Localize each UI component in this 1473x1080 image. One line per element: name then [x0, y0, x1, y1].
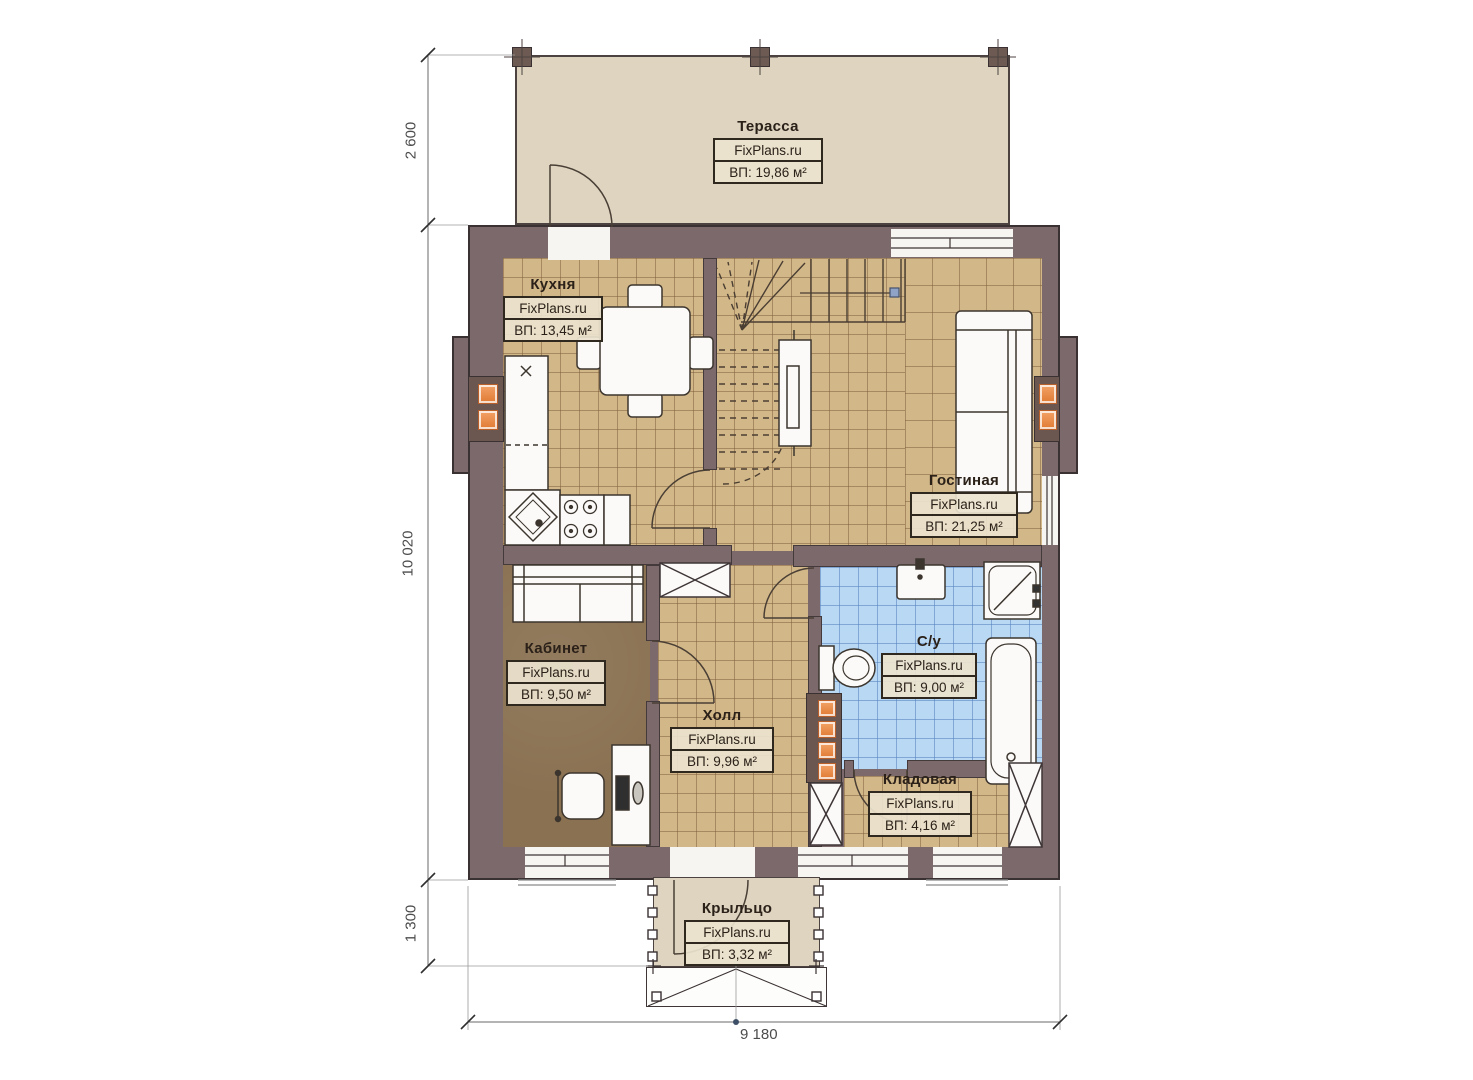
dim-house-depth: 10 020	[399, 531, 416, 577]
brand-watermark: FixPlans.ru	[883, 655, 975, 675]
entry-door-opening	[670, 847, 755, 878]
room-label-storage: Кладовая FixPlans.ru ВП: 4,16 м²	[868, 771, 972, 837]
room-area: ВП: 21,25 м²	[912, 514, 1016, 536]
room-name: Терасса	[713, 118, 823, 135]
terrace-post	[750, 47, 770, 67]
window-top	[891, 229, 1013, 257]
floor-plan: Терасса FixPlans.ru ВП: 19,86 м² Кухня F…	[0, 0, 1473, 1080]
window-porch	[798, 847, 908, 878]
radiator-living	[1034, 376, 1060, 442]
dim-porch-depth: 1 300	[402, 905, 419, 943]
room-name: С/у	[881, 633, 977, 650]
room-area: ВП: 19,86 м²	[715, 160, 821, 182]
room-info-box: FixPlans.ru ВП: 9,96 м²	[670, 727, 774, 773]
wall-kitchen-bottom	[503, 545, 732, 565]
terrace-post	[512, 47, 532, 67]
room-name: Кабинет	[506, 640, 606, 657]
wall-living-bathroom	[793, 545, 1042, 567]
right-wall-pilaster	[1058, 336, 1078, 474]
room-info-box: FixPlans.ru ВП: 13,45 м²	[503, 296, 603, 342]
brand-watermark: FixPlans.ru	[508, 662, 604, 682]
room-name: Холл	[670, 707, 774, 724]
room-name: Кухня	[503, 276, 603, 293]
room-label-bathroom: С/у FixPlans.ru ВП: 9,00 м²	[881, 633, 977, 699]
brand-watermark: FixPlans.ru	[870, 793, 970, 813]
room-label-kitchen: Кухня FixPlans.ru ВП: 13,45 м²	[503, 276, 603, 342]
room-area: ВП: 9,96 м²	[672, 749, 772, 771]
wall-kitchen-stairs	[703, 258, 717, 470]
wall-office-hall	[646, 701, 660, 847]
wall-storage-top	[844, 760, 854, 778]
room-label-living: Гостиная FixPlans.ru ВП: 21,25 м²	[910, 472, 1018, 538]
porch-steps	[646, 967, 827, 1007]
terrace-post	[988, 47, 1008, 67]
brand-watermark: FixPlans.ru	[715, 140, 821, 160]
room-info-box: FixPlans.ru ВП: 4,16 м²	[868, 791, 972, 837]
room-area: ВП: 4,16 м²	[870, 813, 970, 835]
room-info-box: FixPlans.ru ВП: 9,00 м²	[881, 653, 977, 699]
room-label-hall: Холл FixPlans.ru ВП: 9,96 м²	[670, 707, 774, 773]
radiator-hall	[806, 693, 842, 783]
room-area: ВП: 9,00 м²	[883, 675, 975, 697]
office-floor	[503, 565, 650, 847]
room-area: ВП: 13,45 м²	[505, 318, 601, 340]
hall-floor	[658, 565, 808, 847]
window-office	[525, 847, 609, 878]
terrace-door-opening	[548, 227, 610, 260]
window-right	[1042, 476, 1058, 545]
room-label-porch: Крыльцо FixPlans.ru ВП: 3,32 м²	[684, 900, 790, 966]
room-info-box: FixPlans.ru ВП: 19,86 м²	[713, 138, 823, 184]
room-area: ВП: 3,32 м²	[686, 942, 788, 964]
room-label-office: Кабинет FixPlans.ru ВП: 9,50 м²	[506, 640, 606, 706]
room-info-box: FixPlans.ru ВП: 3,32 м²	[684, 920, 790, 966]
window-storage	[933, 847, 1002, 878]
stair-hall-floor	[715, 258, 907, 551]
room-info-box: FixPlans.ru ВП: 9,50 м²	[506, 660, 606, 706]
wall-office-hall	[646, 565, 660, 641]
brand-watermark: FixPlans.ru	[912, 494, 1016, 514]
radiator-kitchen	[468, 376, 504, 442]
room-info-box: FixPlans.ru ВП: 21,25 м²	[910, 492, 1018, 538]
brand-watermark: FixPlans.ru	[505, 298, 601, 318]
dim-terrace-depth: 2 600	[402, 122, 419, 160]
room-label-terrace: Терасса FixPlans.ru ВП: 19,86 м²	[713, 118, 823, 184]
room-name: Гостиная	[910, 472, 1018, 489]
room-name: Крыльцо	[684, 900, 790, 917]
dim-house-width: 9 180	[740, 1026, 778, 1043]
brand-watermark: FixPlans.ru	[686, 922, 788, 942]
brand-watermark: FixPlans.ru	[672, 729, 772, 749]
room-area: ВП: 9,50 м²	[508, 682, 604, 704]
room-name: Кладовая	[868, 771, 972, 788]
